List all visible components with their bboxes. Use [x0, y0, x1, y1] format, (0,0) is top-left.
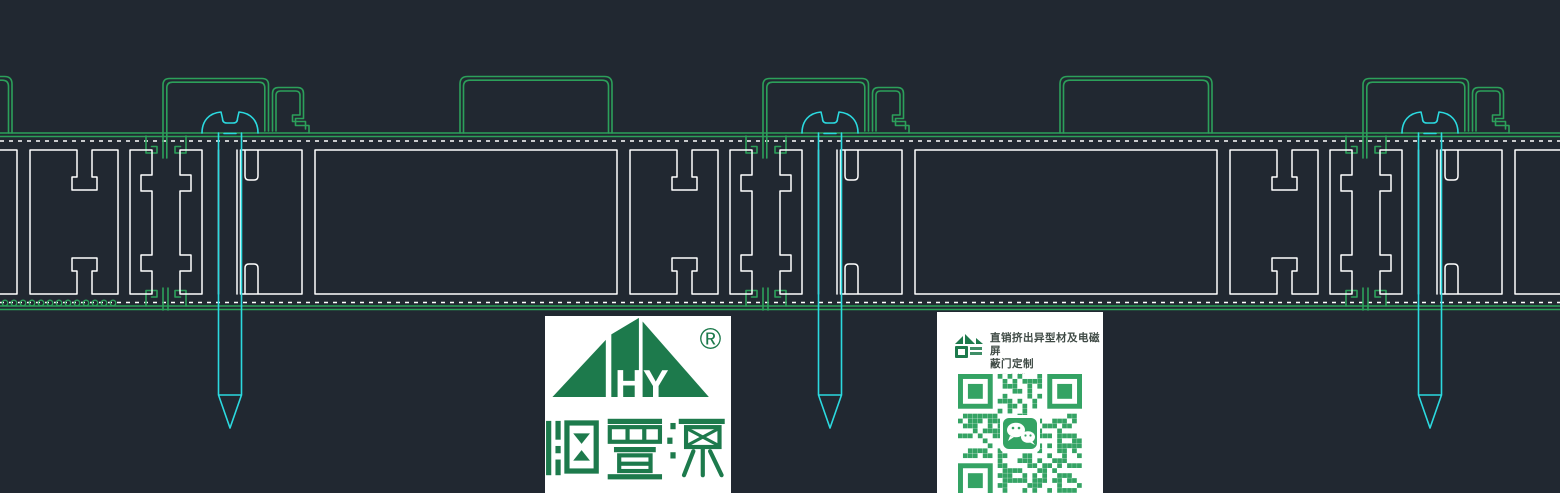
- screw-channel-walls: [819, 150, 838, 294]
- interlock-profile-left: [730, 150, 752, 294]
- house-logo-icon: HY ®: [545, 316, 731, 408]
- cover-hat-small-outer: [1473, 88, 1510, 134]
- cell-t-slot: [630, 150, 718, 294]
- screw-shaft: [219, 133, 242, 428]
- cell-main-cavity: [915, 150, 1217, 294]
- cell-pocket: [1441, 150, 1503, 294]
- screw-shaft: [819, 133, 842, 428]
- logo-monogram: HY: [615, 363, 669, 406]
- cover-hat-small-outer: [273, 88, 310, 134]
- roof-left-triangle: [552, 340, 605, 397]
- interlock-profile-left: [130, 150, 152, 294]
- interlock-profile-left: [1330, 150, 1352, 294]
- cover-hat-plain-outer: [460, 77, 612, 134]
- screw-head: [802, 112, 858, 134]
- cover-hat-large-inner: [167, 82, 265, 158]
- cover-hat-plain-inner: [1064, 80, 1209, 133]
- wechat-qr-code: [958, 374, 1082, 493]
- screw-channel-walls: [219, 150, 238, 294]
- panel-module[interactable]: [0, 77, 17, 311]
- panel-module[interactable]: [1230, 77, 1560, 311]
- qr-card-header: 直销挤出异型材及电磁屏 蔽门定制 工厂直销: [937, 312, 1103, 383]
- cad-viewport[interactable]: HY ® 恒置源 直销挤出异型材及电磁屏 蔽门定制 工厂直销: [0, 0, 1560, 493]
- wechat-qr-card: 直销挤出异型材及电磁屏 蔽门定制 工厂直销: [937, 312, 1103, 493]
- panel-module[interactable]: [630, 77, 1217, 311]
- cover-hat-small-outer: [873, 88, 910, 134]
- brand-name-text: 恒置源: [545, 486, 546, 487]
- house-logo-small-icon: [954, 332, 984, 360]
- cell-t-slot: [1230, 150, 1318, 294]
- registered-trademark-icon: ®: [700, 323, 722, 356]
- screw-channel-walls: [1419, 150, 1438, 294]
- panel-module[interactable]: [30, 77, 617, 311]
- screw-head: [202, 112, 258, 134]
- brand-logo-card: HY ® 恒置源: [545, 316, 731, 493]
- cell-main-cavity: [1515, 150, 1560, 294]
- cover-hat-large-inner: [767, 82, 865, 158]
- screw-head: [1402, 112, 1458, 134]
- screw[interactable]: [802, 112, 858, 428]
- screw[interactable]: [202, 112, 258, 428]
- qr-title-line1: 直销挤出异型材及电磁屏: [990, 332, 1103, 358]
- cover-hat-plain-outer: [0, 77, 12, 134]
- cad-drawing-canvas[interactable]: [0, 0, 1560, 493]
- cell-pocket: [241, 150, 303, 294]
- cover-hat-plain-inner: [464, 80, 609, 133]
- cover-hat-large-inner: [1367, 82, 1465, 158]
- qr-title-line2: 蔽门定制: [990, 358, 1103, 371]
- cover-hat-plain-inner: [0, 80, 9, 133]
- interlock-profile-right: [180, 150, 202, 294]
- screw-shaft: [1419, 133, 1442, 428]
- cell-pocket: [841, 150, 903, 294]
- interlock-profile-right: [1380, 150, 1402, 294]
- cell-main-cavity: [0, 150, 17, 294]
- cover-hat-plain-outer: [1060, 77, 1212, 134]
- interlock-profile-right: [780, 150, 802, 294]
- brand-wordmark: [545, 408, 731, 486]
- screw[interactable]: [1402, 112, 1458, 428]
- cell-main-cavity: [315, 150, 617, 294]
- cell-t-slot: [30, 150, 118, 294]
